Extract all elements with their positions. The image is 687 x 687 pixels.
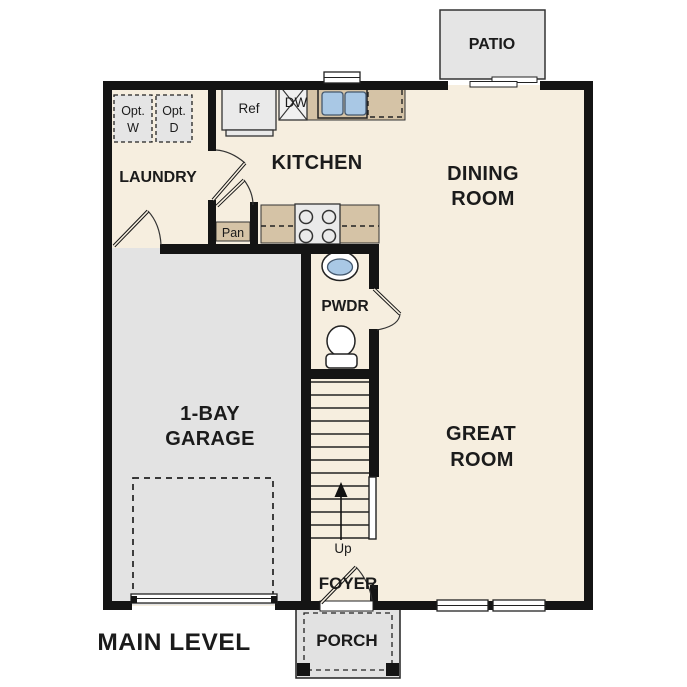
floor-plan-page: PATIO Opt. W Opt. D Ref DW LAUNDRY KITCH… [0, 0, 687, 687]
wall-garage-right [301, 244, 311, 610]
label-pantry: Pan [222, 226, 244, 240]
label-kitchen: KITCHEN [272, 152, 363, 174]
label-opt-washer-line2: W [127, 121, 139, 135]
label-up: Up [334, 541, 351, 556]
plan-title: MAIN LEVEL [97, 629, 250, 656]
label-porch: PORCH [316, 631, 377, 650]
kitchen-sink-icon [318, 88, 367, 118]
label-opt-dryer-line1: Opt. [162, 104, 186, 118]
label-patio: PATIO [469, 36, 516, 53]
label-opt-dryer-line2: D [169, 121, 178, 135]
garage-door [131, 594, 277, 603]
wall-bottom-left [103, 601, 132, 610]
label-refrigerator: Ref [238, 101, 259, 116]
wall-powder-right-upper [369, 244, 379, 289]
kitchen-window [324, 72, 360, 83]
stove-icon [295, 204, 340, 244]
front-door-sill [320, 601, 373, 611]
refrigerator-base [226, 130, 273, 136]
stair-railing [369, 477, 376, 539]
garage-floor-area [111, 248, 306, 605]
wall-bottom-center [275, 601, 320, 610]
great-room-window-right [493, 600, 545, 611]
label-foyer: FOYER [319, 574, 378, 593]
floor-plan-drawing: PATIO Opt. W Opt. D Ref DW LAUNDRY KITCH… [0, 0, 687, 687]
wall-top-left [103, 81, 448, 90]
label-laundry: LAUNDRY [119, 169, 197, 186]
label-dining-line1: DINING [447, 163, 519, 185]
wall-left [103, 81, 112, 610]
porch-post-left [297, 663, 310, 676]
label-opt-washer-line1: Opt. [121, 104, 145, 118]
label-garage-line2: GARAGE [165, 428, 255, 450]
porch-post-right [386, 663, 399, 676]
wall-garage-top [160, 244, 379, 254]
label-great-line2: ROOM [450, 449, 513, 471]
label-great-line1: GREAT [446, 423, 516, 445]
wall-pantry-left [208, 200, 216, 244]
wall-laundry-right [208, 81, 216, 151]
wall-powder-bottom [301, 369, 379, 379]
toilet-icon [326, 326, 357, 368]
label-powder: PWDR [321, 298, 368, 315]
wall-powder-right-lower [369, 329, 379, 477]
wall-right [584, 81, 593, 610]
wall-pantry-right [250, 202, 258, 244]
great-room-window-left [437, 600, 488, 611]
label-dishwasher: DW [285, 95, 308, 110]
label-garage-line1: 1-BAY [180, 403, 240, 425]
label-dining-line2: ROOM [451, 188, 514, 210]
pedestal-sink-icon [322, 252, 358, 281]
